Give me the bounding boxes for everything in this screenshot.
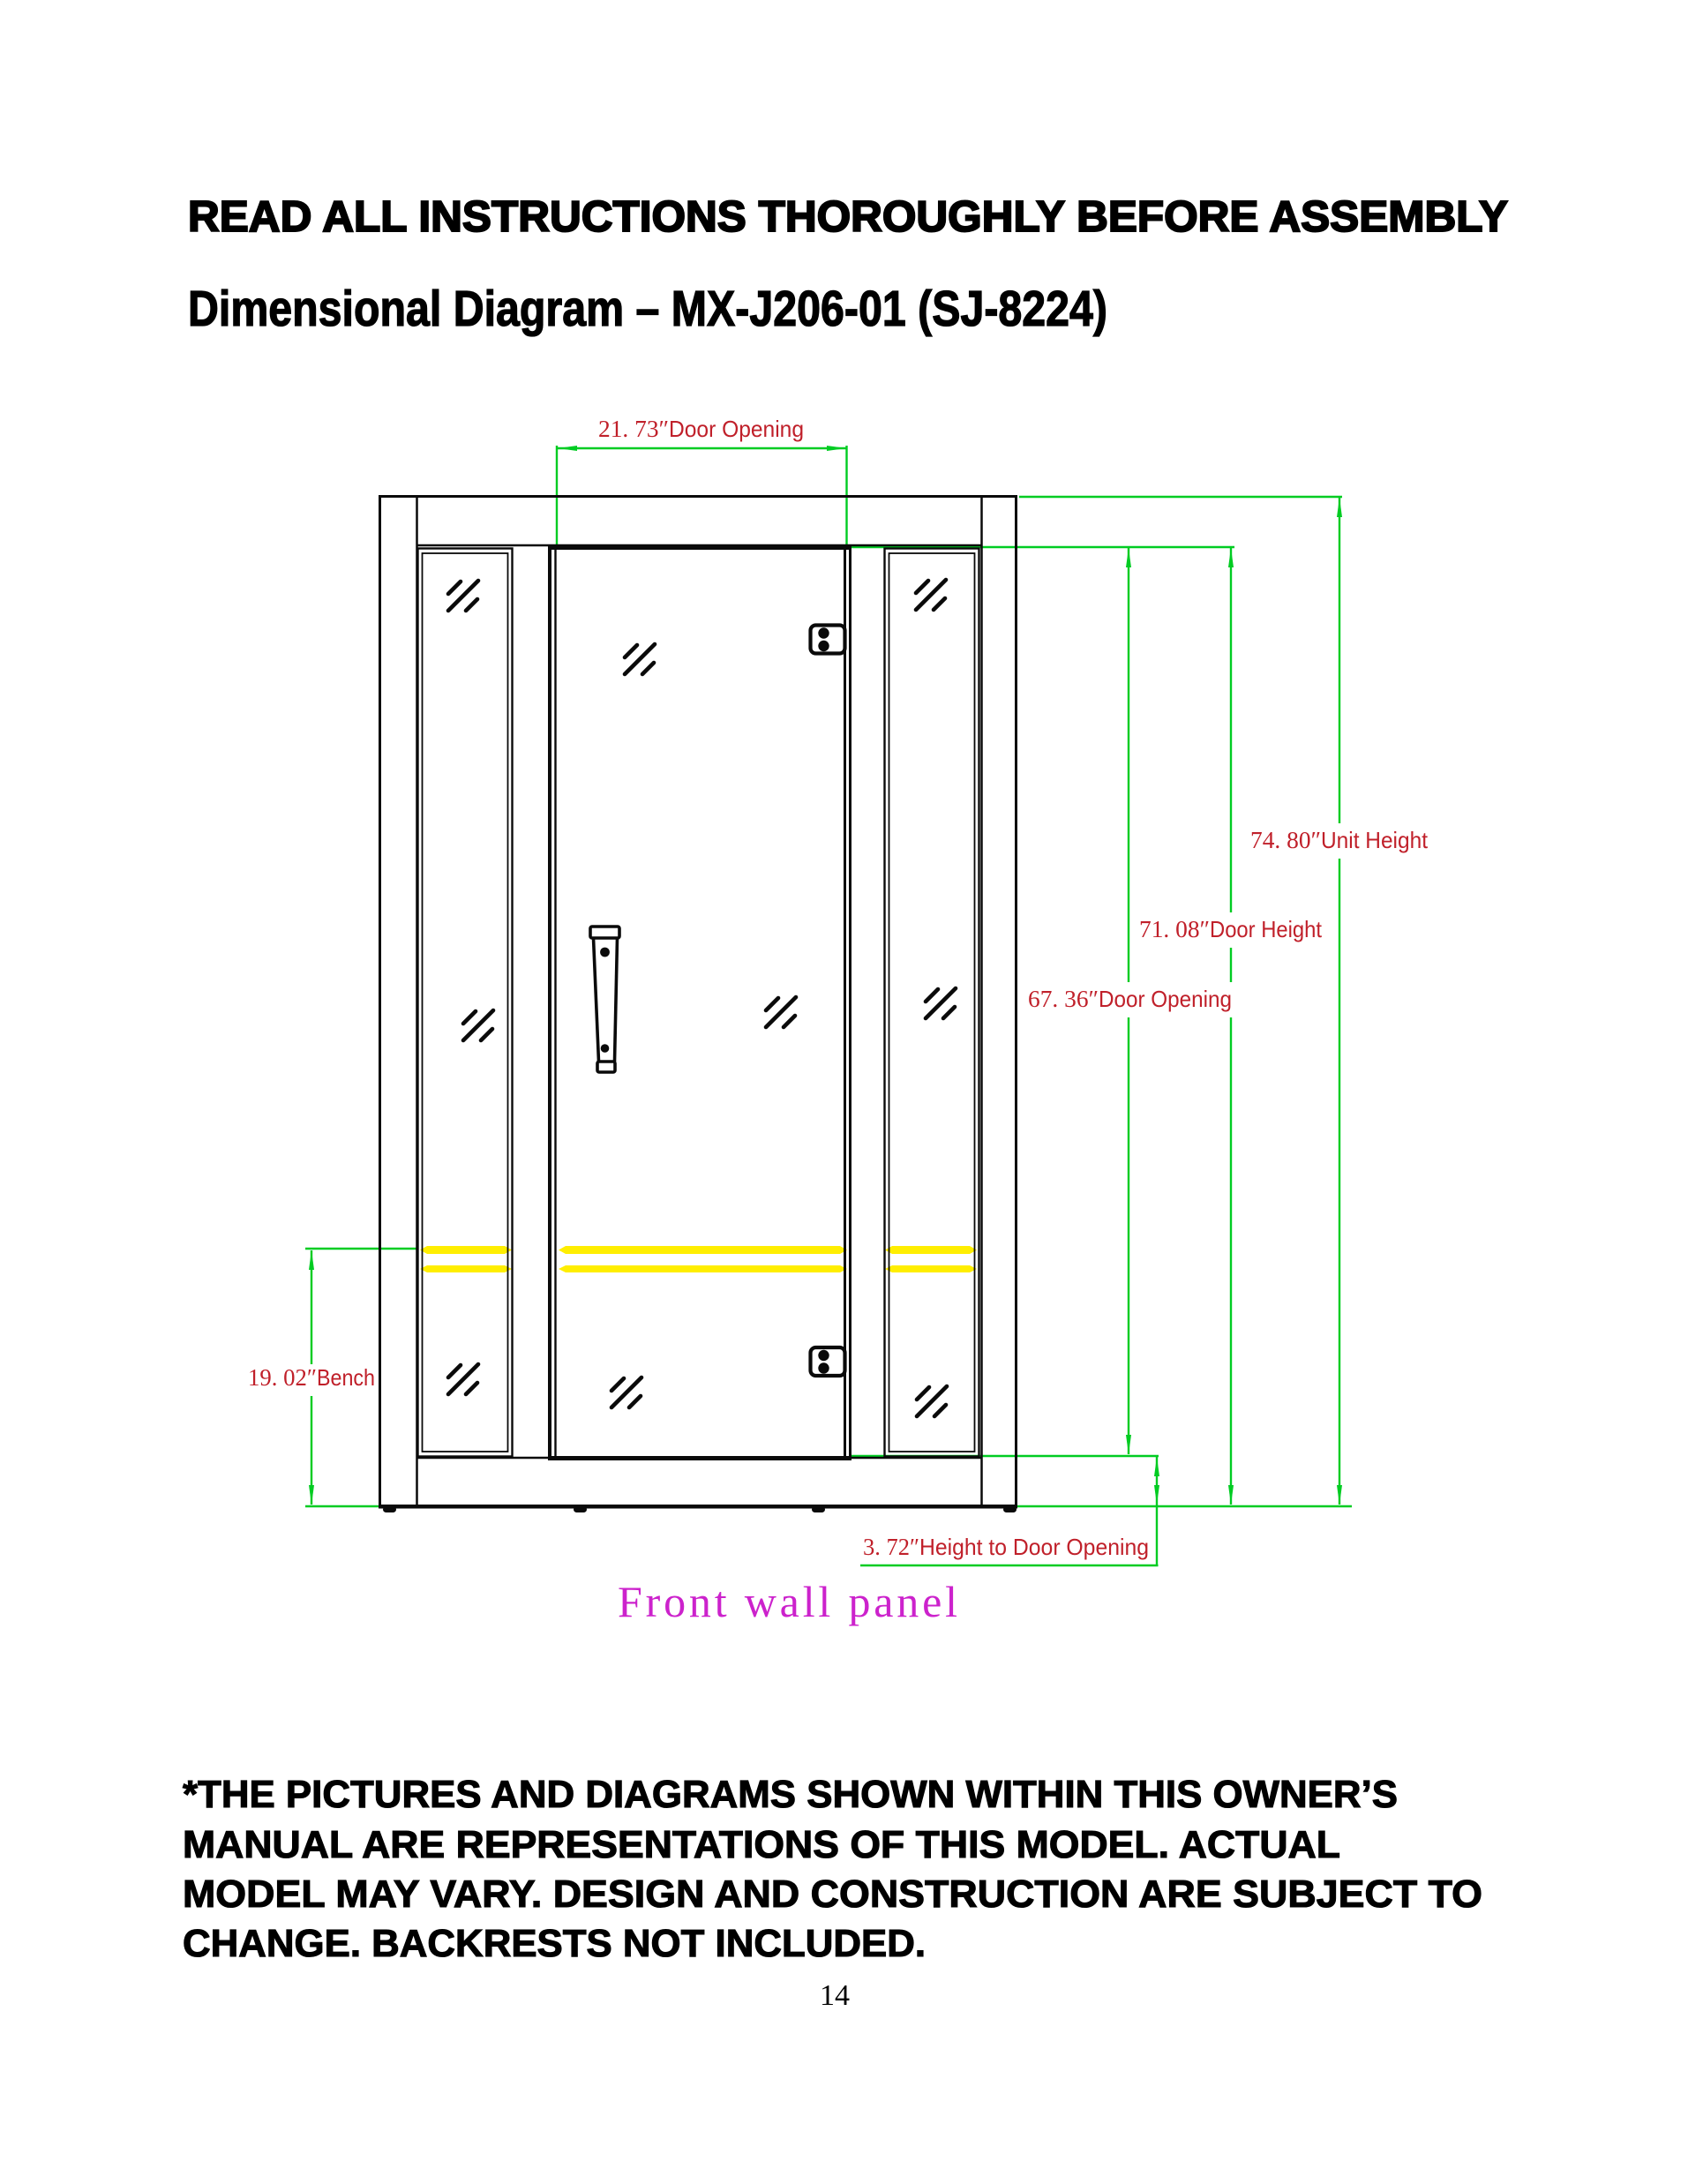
svg-text:Unit Height: Unit Height [1321,827,1429,853]
svg-text:14: 14 [820,1979,850,2012]
svg-text:Dimensional Diagram – MX-J206-: Dimensional Diagram – MX-J206-01 (SJ-822… [188,281,1107,337]
svg-text:3. 72″: 3. 72″ [863,1533,919,1560]
svg-text:Height to Door Opening: Height to Door Opening [919,1534,1149,1560]
svg-text:21. 73″: 21. 73″ [598,415,669,442]
svg-text:*THE PICTURES AND DIAGRAMS SHO: *THE PICTURES AND DIAGRAMS SHOWN WITHIN … [183,1773,1398,1816]
svg-text:71. 08″: 71. 08″ [1139,915,1210,942]
svg-text:Bench: Bench [317,1364,375,1391]
svg-text:MANUAL ARE REPRESENTATIONS OF: MANUAL ARE REPRESENTATIONS OF THIS MODEL… [183,1823,1340,1866]
svg-text:Door Opening: Door Opening [669,416,804,442]
svg-text:19. 02″: 19. 02″ [248,1363,317,1391]
svg-text:Door Height: Door Height [1210,916,1323,942]
svg-text:74. 80″: 74. 80″ [1250,826,1321,853]
svg-text:CHANGE. BACKRESTS NOT INCLUDED: CHANGE. BACKRESTS NOT INCLUDED. [183,1922,926,1965]
svg-text:Door Opening: Door Opening [1099,986,1232,1012]
svg-text:Front wall panel: Front wall panel [618,1577,957,1626]
svg-text:READ ALL INSTRUCTIONS THOROUGH: READ ALL INSTRUCTIONS THOROUGHLY BEFORE … [188,193,1508,241]
svg-text:67. 36″: 67. 36″ [1028,985,1099,1012]
svg-text:MODEL MAY VARY. DESIGN AND CO: MODEL MAY VARY. DESIGN AND CONSTRUCTION … [183,1873,1482,1916]
